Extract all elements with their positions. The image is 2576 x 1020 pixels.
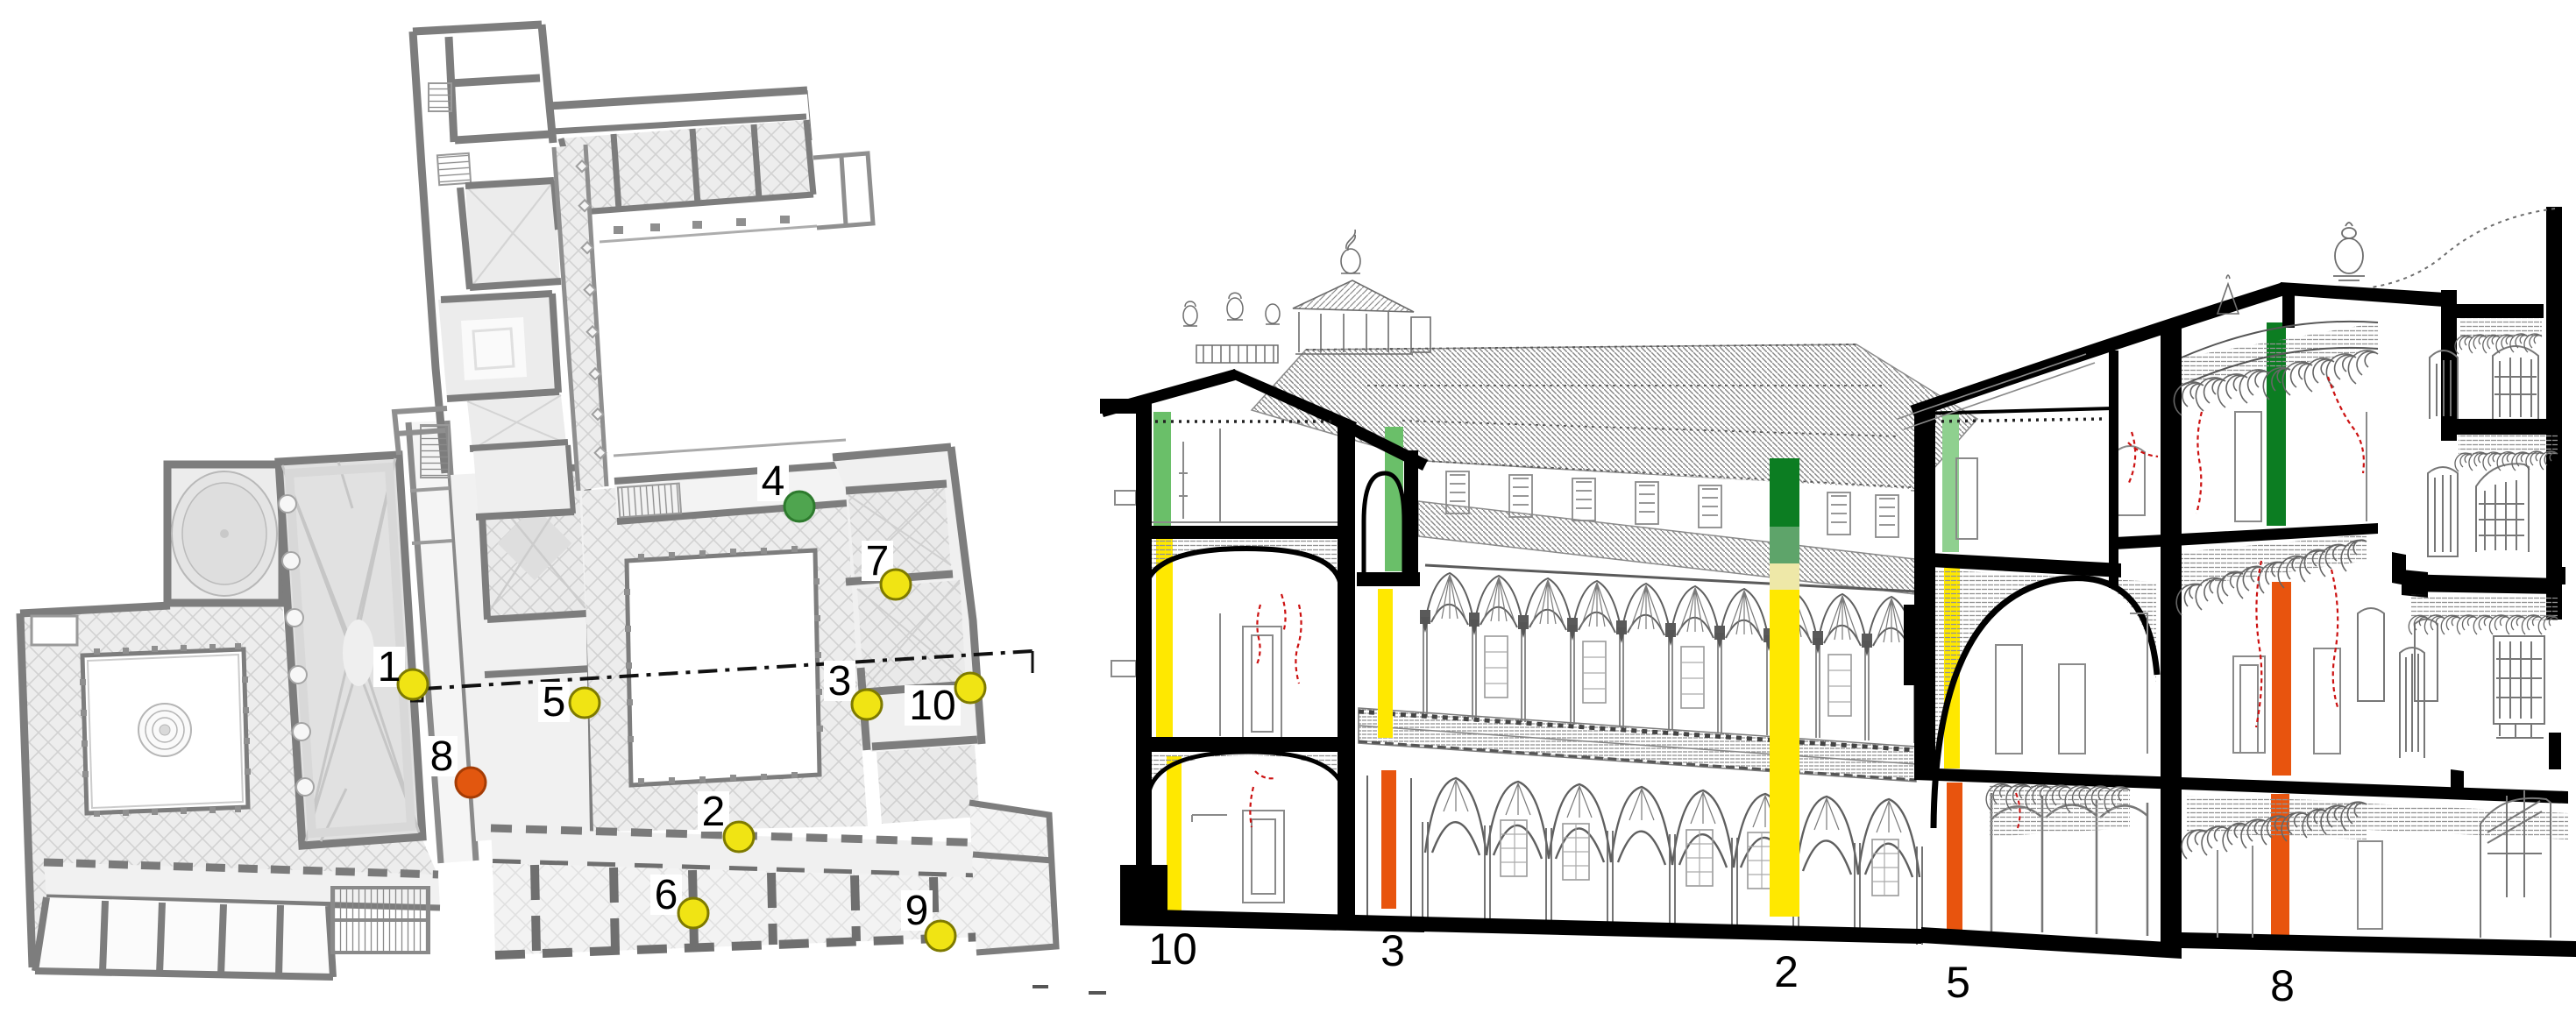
svg-text:6: 6 bbox=[655, 872, 678, 918]
svg-text:5: 5 bbox=[1946, 958, 1970, 1007]
svg-text:8: 8 bbox=[430, 733, 454, 780]
svg-text:4: 4 bbox=[762, 458, 785, 505]
svg-text:1: 1 bbox=[378, 644, 401, 691]
svg-text:2: 2 bbox=[1774, 947, 1799, 996]
svg-text:10: 10 bbox=[1148, 924, 1197, 974]
svg-text:2: 2 bbox=[702, 789, 726, 835]
svg-text:3: 3 bbox=[1380, 926, 1405, 975]
svg-text:8: 8 bbox=[2270, 961, 2295, 1010]
svg-text:3: 3 bbox=[828, 658, 852, 705]
svg-text:10: 10 bbox=[909, 683, 955, 729]
svg-text:9: 9 bbox=[905, 888, 929, 934]
svg-text:7: 7 bbox=[866, 538, 890, 584]
svg-text:5: 5 bbox=[543, 679, 566, 726]
